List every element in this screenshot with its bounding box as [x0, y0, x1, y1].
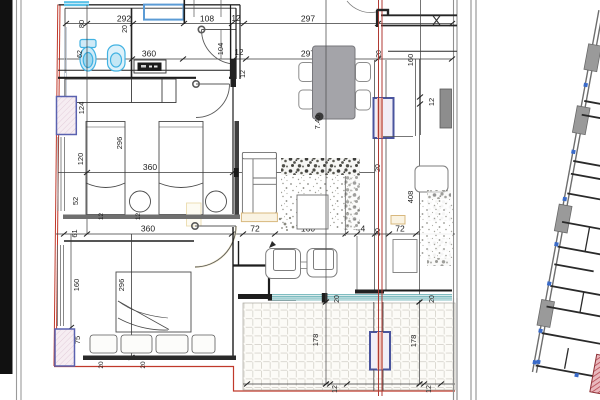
svg-text:52: 52: [71, 197, 80, 205]
svg-text:120: 120: [76, 153, 85, 166]
svg-text:124: 124: [77, 102, 86, 115]
svg-text:12: 12: [426, 385, 433, 393]
svg-text:360: 360: [141, 224, 155, 234]
svg-text:360: 360: [142, 49, 156, 59]
svg-text:360: 360: [143, 162, 157, 172]
svg-text:108: 108: [200, 14, 214, 24]
svg-text:20: 20: [98, 361, 105, 369]
svg-text:296: 296: [117, 279, 126, 292]
svg-text:20: 20: [122, 25, 129, 33]
svg-text:20: 20: [334, 295, 341, 303]
svg-text:62: 62: [77, 50, 84, 58]
svg-text:7.40: 7.40: [313, 115, 322, 130]
svg-text:20: 20: [429, 295, 436, 303]
svg-text:178: 178: [409, 335, 418, 348]
svg-text:160: 160: [406, 54, 415, 67]
svg-text:292: 292: [117, 14, 131, 24]
svg-text:80: 80: [77, 20, 86, 28]
svg-text:72: 72: [395, 224, 405, 234]
svg-text:12: 12: [98, 213, 105, 221]
svg-text:20: 20: [140, 361, 147, 369]
svg-text:408: 408: [406, 191, 415, 204]
svg-text:72: 72: [250, 224, 260, 234]
svg-text:12: 12: [427, 98, 436, 106]
svg-text:160: 160: [72, 279, 81, 292]
svg-text:297: 297: [301, 14, 315, 24]
svg-text:178: 178: [311, 334, 320, 347]
svg-text:296: 296: [115, 137, 124, 150]
svg-text:12: 12: [240, 70, 247, 78]
svg-text:12: 12: [332, 385, 339, 393]
svg-text:12: 12: [135, 213, 142, 221]
svg-text:104: 104: [216, 43, 225, 56]
